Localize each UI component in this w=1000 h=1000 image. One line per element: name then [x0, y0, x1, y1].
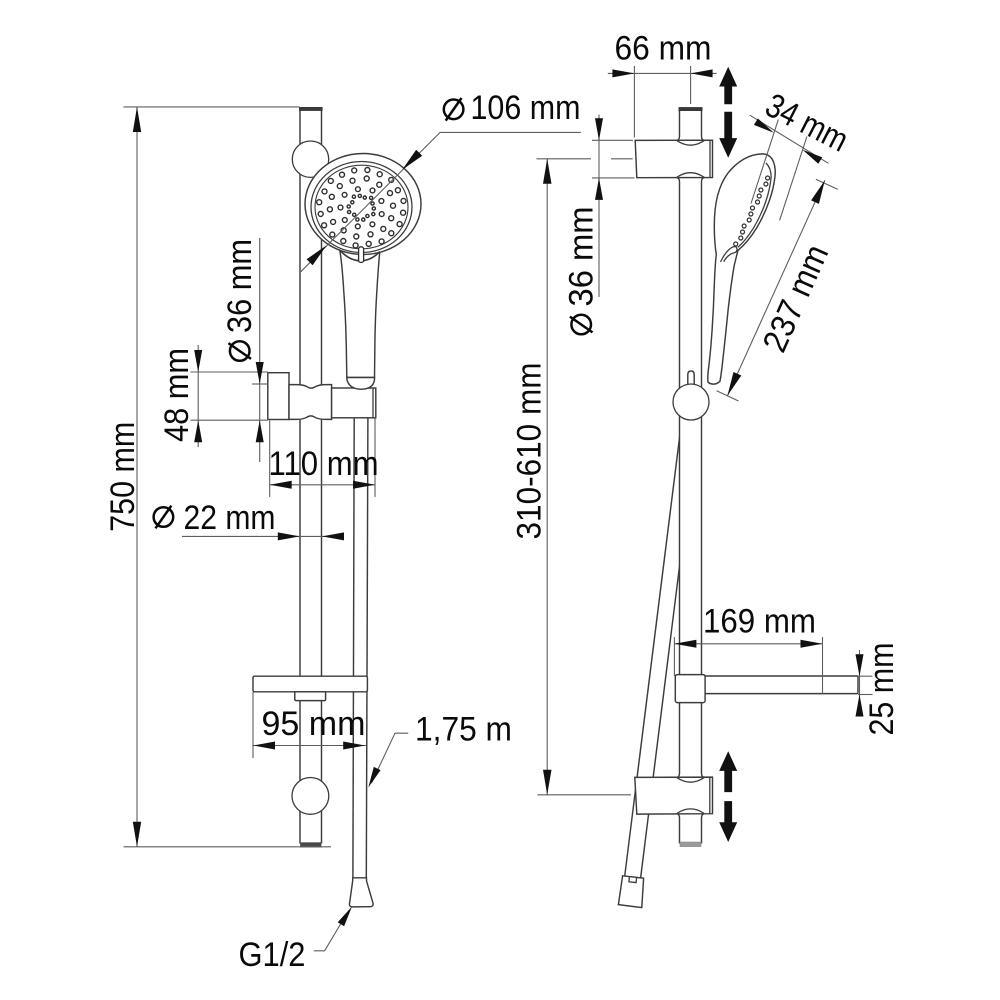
- svg-text:95 mm: 95 mm: [262, 705, 366, 743]
- svg-text:1,75 m: 1,75 m: [415, 711, 512, 749]
- svg-text:310-610 mm: 310-610 mm: [511, 363, 549, 540]
- svg-text:110 mm: 110 mm: [269, 445, 379, 483]
- svg-text:750 mm: 750 mm: [104, 422, 142, 532]
- svg-text:48 mm: 48 mm: [158, 348, 196, 442]
- svg-text:169 mm: 169 mm: [703, 603, 816, 641]
- svg-text:22 mm: 22 mm: [184, 499, 276, 537]
- svg-text:66 mm: 66 mm: [615, 30, 712, 68]
- svg-text:36 mm: 36 mm: [563, 207, 601, 307]
- svg-text:36 mm: 36 mm: [221, 239, 259, 333]
- svg-text:G1/2: G1/2: [239, 936, 306, 974]
- svg-text:106 mm: 106 mm: [471, 89, 581, 127]
- svg-text:25 mm: 25 mm: [863, 643, 901, 736]
